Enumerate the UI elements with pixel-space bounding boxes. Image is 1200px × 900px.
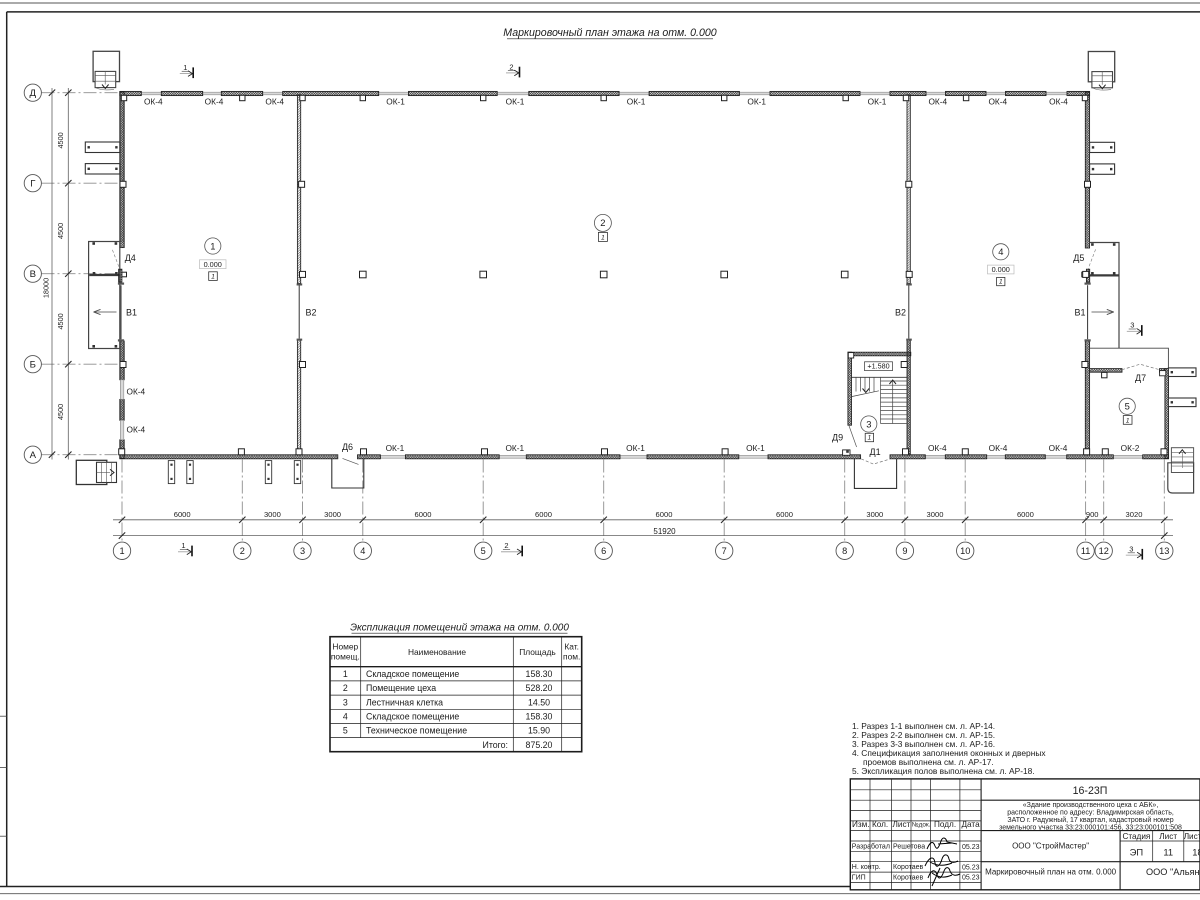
svg-text:Д4: Д4 [125, 253, 136, 263]
svg-text:1: 1 [119, 546, 124, 556]
svg-text:5: 5 [343, 726, 348, 736]
svg-text:ОК-2: ОК-2 [1121, 443, 1140, 453]
svg-text:+1.580: +1.580 [867, 362, 889, 371]
svg-text:Д5: Д5 [1073, 253, 1084, 263]
svg-text:3: 3 [1130, 321, 1134, 330]
svg-text:13: 13 [1159, 546, 1169, 556]
svg-text:16-23П: 16-23П [1073, 785, 1108, 797]
svg-text:3000: 3000 [264, 510, 281, 519]
svg-text:10: 10 [960, 546, 970, 556]
svg-text:3: 3 [343, 697, 348, 707]
svg-text:0.000: 0.000 [204, 260, 222, 269]
svg-text:ООО "АльянсПроект": ООО "АльянсПроект" [1146, 867, 1200, 877]
svg-text:1: 1 [601, 234, 605, 241]
svg-text:Коротаев: Коротаев [893, 874, 924, 881]
svg-text:ОК-1: ОК-1 [868, 96, 887, 106]
svg-text:Маркировочный план этажа на от: Маркировочный план этажа на отм. 0.000 [503, 27, 716, 39]
svg-text:ОК-1: ОК-1 [505, 443, 524, 453]
svg-text:1: 1 [999, 279, 1003, 286]
svg-text:6000: 6000 [776, 510, 793, 519]
svg-text:900: 900 [1086, 510, 1099, 519]
svg-text:Решетова: Решетова [893, 844, 925, 851]
svg-text:ОК-4: ОК-4 [1049, 96, 1068, 106]
svg-text:Складское помещение: Складское помещение [366, 711, 459, 721]
svg-text:2: 2 [343, 683, 348, 693]
svg-text:3020: 3020 [1126, 510, 1143, 519]
svg-text:8: 8 [842, 546, 847, 556]
svg-text:расположенное по адресу: Влади: расположенное по адресу: Владимирская об… [1007, 809, 1174, 817]
svg-text:ОК-4: ОК-4 [989, 443, 1008, 453]
svg-text:Номер: Номер [332, 642, 358, 652]
svg-text:ОК-4: ОК-4 [1049, 443, 1068, 453]
svg-text:2: 2 [504, 541, 508, 550]
svg-text:В1: В1 [1074, 307, 1085, 317]
svg-text:4500: 4500 [56, 132, 65, 148]
svg-text:Д1: Д1 [870, 447, 881, 457]
svg-text:0.000: 0.000 [992, 265, 1010, 274]
svg-text:Листов: Листов [1184, 832, 1200, 841]
svg-text:В2: В2 [895, 307, 906, 317]
svg-text:1: 1 [343, 669, 348, 679]
svg-text:ОК-4: ОК-4 [127, 386, 146, 396]
svg-text:«Здание производственного цеха: «Здание производственного цеха с АБК», [1023, 802, 1159, 809]
svg-text:528.20: 528.20 [526, 683, 553, 693]
svg-text:158.30: 158.30 [526, 669, 553, 679]
svg-text:ОК-1: ОК-1 [626, 443, 645, 453]
svg-text:ОК-4: ОК-4 [265, 96, 284, 106]
svg-text:9: 9 [902, 546, 907, 556]
svg-text:Д7: Д7 [1135, 373, 1146, 383]
svg-text:3000: 3000 [324, 510, 341, 519]
svg-text:Экспликация помещений этажа на: Экспликация помещений этажа на отм. 0.00… [350, 623, 569, 634]
svg-text:4500: 4500 [56, 404, 65, 420]
svg-text:ОК-4: ОК-4 [144, 96, 163, 106]
svg-text:В2: В2 [306, 307, 317, 317]
svg-text:05.23: 05.23 [962, 864, 980, 871]
svg-text:Д: Д [30, 88, 37, 99]
svg-text:4: 4 [998, 246, 1003, 257]
svg-text:14.50: 14.50 [528, 697, 550, 707]
svg-text:Дата: Дата [962, 820, 981, 829]
svg-text:ГИП: ГИП [852, 874, 866, 881]
svg-text:Д9: Д9 [832, 433, 843, 443]
svg-text:6000: 6000 [535, 510, 552, 519]
svg-text:ЗАТО г. Радужный, 17 квартал,: ЗАТО г. Радужный, 17 квартал, кадастровы… [1007, 816, 1173, 824]
svg-text:ОК-1: ОК-1 [506, 96, 525, 106]
svg-text:Складское помещение: Складское помещение [366, 669, 459, 679]
svg-text:Итого:: Итого: [483, 740, 509, 750]
svg-text:6000: 6000 [174, 510, 191, 519]
svg-text:Н. контр.: Н. контр. [852, 864, 881, 871]
svg-text:ООО "СтройМастер": ООО "СтройМастер" [1012, 841, 1089, 850]
svg-text:ОК-4: ОК-4 [928, 96, 947, 106]
svg-text:3000: 3000 [866, 510, 883, 519]
svg-text:2: 2 [509, 62, 513, 71]
svg-text:4500: 4500 [56, 313, 65, 329]
svg-text:1: 1 [1126, 417, 1130, 424]
svg-text:4500: 4500 [56, 223, 65, 239]
svg-text:Техническое помещение: Техническое помещение [366, 726, 467, 736]
svg-text:7: 7 [722, 546, 727, 556]
svg-text:Д6: Д6 [342, 442, 353, 452]
svg-text:18: 18 [1192, 847, 1200, 858]
svg-text:ОК-1: ОК-1 [627, 96, 646, 106]
svg-text:помещ.: помещ. [331, 652, 360, 662]
svg-text:Б: Б [30, 360, 36, 371]
svg-text:Изм.: Изм. [852, 820, 870, 829]
svg-text:ЭП: ЭП [1130, 847, 1143, 858]
svg-text:ОК-4: ОК-4 [988, 96, 1007, 106]
svg-text:ОК-1: ОК-1 [386, 96, 405, 106]
svg-text:ОК-1: ОК-1 [746, 443, 765, 453]
svg-text:2: 2 [600, 217, 605, 228]
svg-text:6000: 6000 [1017, 510, 1034, 519]
svg-text:15.90: 15.90 [528, 726, 550, 736]
svg-text:№док.: №док. [912, 822, 931, 829]
svg-text:1: 1 [210, 240, 215, 251]
svg-text:В: В [30, 269, 36, 280]
svg-text:4: 4 [360, 546, 365, 556]
svg-text:3000: 3000 [927, 510, 944, 519]
svg-text:6: 6 [601, 546, 606, 556]
svg-text:3: 3 [866, 418, 871, 429]
svg-text:Помещение цеха: Помещение цеха [366, 683, 436, 693]
svg-text:1: 1 [183, 63, 187, 72]
svg-text:Лестничная клетка: Лестничная клетка [366, 697, 443, 707]
svg-text:Кол.: Кол. [872, 820, 888, 829]
svg-text:Коротаев: Коротаев [893, 864, 924, 871]
svg-text:5: 5 [481, 546, 486, 556]
svg-text:1: 1 [868, 435, 872, 442]
svg-text:1: 1 [181, 541, 185, 550]
svg-text:Маркировочный план на отм. 0.0: Маркировочный план на отм. 0.000 [985, 868, 1117, 877]
svg-text:11: 11 [1163, 847, 1173, 858]
svg-text:Разработал: Разработал [852, 843, 890, 851]
svg-text:4: 4 [343, 711, 348, 721]
svg-text:пом.: пом. [563, 652, 580, 662]
svg-text:Г: Г [30, 179, 36, 190]
svg-text:Наименование: Наименование [408, 647, 466, 657]
svg-text:12: 12 [1099, 546, 1109, 556]
svg-text:11: 11 [1081, 546, 1091, 556]
svg-text:158.30: 158.30 [526, 711, 553, 721]
svg-text:05.23: 05.23 [962, 844, 980, 851]
svg-text:Стадия: Стадия [1122, 832, 1150, 841]
svg-text:ОК-4: ОК-4 [205, 96, 224, 106]
svg-text:51920: 51920 [653, 527, 676, 536]
svg-text:3: 3 [300, 546, 305, 556]
svg-text:ОК-1: ОК-1 [747, 96, 766, 106]
svg-text:2: 2 [240, 546, 245, 556]
svg-text:Кат.: Кат. [564, 642, 579, 652]
svg-text:Лист: Лист [893, 820, 911, 829]
svg-text:5: 5 [1125, 401, 1130, 412]
svg-text:земельного участка 33:23:00010: земельного участка 33:23:000101:456, 33:… [999, 824, 1182, 831]
svg-text:А: А [30, 450, 37, 461]
svg-text:Площадь: Площадь [519, 647, 556, 657]
svg-text:6000: 6000 [415, 510, 432, 519]
svg-text:6000: 6000 [656, 510, 673, 519]
svg-text:Лист: Лист [1159, 832, 1177, 841]
svg-text:ОК-4: ОК-4 [928, 443, 947, 453]
svg-text:В1: В1 [126, 307, 137, 317]
svg-text:3: 3 [1129, 545, 1133, 554]
svg-text:5. Экспликация полов выполнена: 5. Экспликация полов выполнена см. л. АР… [852, 766, 1035, 776]
svg-text:05.23: 05.23 [962, 875, 980, 882]
svg-text:ОК-4: ОК-4 [127, 425, 146, 435]
svg-text:1: 1 [211, 273, 215, 280]
svg-text:Подл.: Подл. [934, 820, 956, 829]
svg-text:ОК-1: ОК-1 [386, 443, 405, 453]
svg-text:18000: 18000 [41, 278, 50, 298]
svg-text:875.20: 875.20 [526, 740, 553, 750]
